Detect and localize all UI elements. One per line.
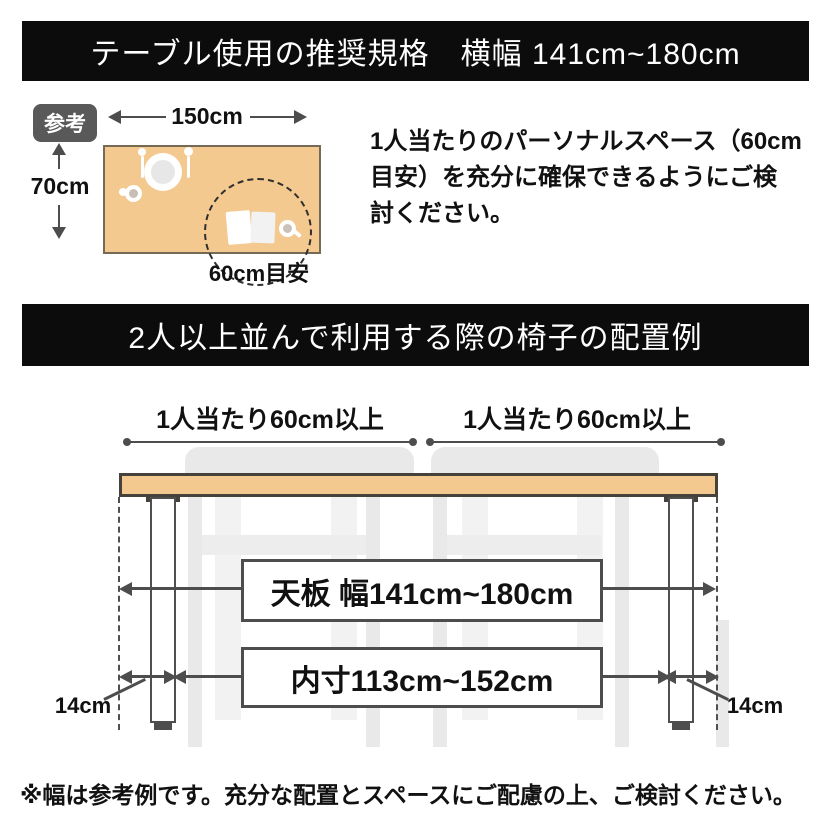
table-leg-left [150, 497, 176, 723]
chair-leg-left-2 [215, 497, 241, 720]
line-end-dot [123, 438, 131, 446]
reference-badge: 参考 [33, 104, 97, 142]
per-person-line-left [127, 441, 413, 443]
note-line-2: 目安）を充分に確保できるようにご検 [370, 160, 822, 196]
table-depth-label: 70cm [30, 173, 90, 200]
teacup-inner-icon [283, 224, 292, 233]
inner-arrow-right-line [603, 675, 660, 678]
leg-inset-arrow-left-rhead-icon [164, 670, 177, 684]
tabletop-width-box: 天板 幅141cm~180cm [241, 559, 603, 622]
depth-arrow-up-head-icon [52, 143, 66, 155]
depth-arrow-down-head-icon [52, 227, 66, 239]
layout-banner-title: 2人以上並んで利用する際の椅子の配置例 [128, 313, 702, 357]
per-person-line-right [430, 441, 721, 443]
chair-leg-right-1 [433, 497, 447, 747]
note-line-1: 1人当たりのパーソナルスペース（60cm [370, 124, 822, 160]
inner-width-label: 内寸113cm~152cm [291, 656, 554, 700]
chair-seat-right [447, 535, 601, 555]
reference-badge-label: 参考 [44, 108, 86, 138]
note-line-3: 討ください。 [370, 196, 822, 232]
table-leg-right [668, 497, 694, 723]
book-left-page-icon [226, 210, 253, 245]
chair-leg-right-4 [615, 497, 629, 747]
leg-inset-label-left: 14cm [46, 693, 120, 719]
personal-space-label: 60cm目安 [192, 256, 326, 288]
inner-width-box: 内寸113cm~152cm [241, 647, 603, 708]
depth-arrow-lower-stem [58, 205, 60, 227]
tabletop-arrow-left-line [131, 587, 241, 590]
book-right-page-icon [250, 212, 275, 244]
cup-inner-icon [129, 189, 138, 198]
depth-arrow-upper-stem [58, 155, 60, 169]
leg-inset-arrow-left-line [129, 675, 167, 678]
table-width-label: 150cm [166, 103, 248, 130]
chair-leg-left-1 [188, 497, 202, 747]
table-leg-foot-right [672, 721, 690, 730]
personal-space-note: 1人当たりのパーソナルスペース（60cm 目安）を充分に確保できるようにご検 討… [370, 124, 822, 232]
infographic-page: テーブル使用の推奨規格 横幅 141cm~180cm 参考 150cm 70cm… [0, 0, 831, 831]
line-end-dot [409, 438, 417, 446]
table-leg-foot-left [154, 721, 172, 730]
tabletop-arrow-right-head-icon [703, 582, 716, 596]
chair-seat-left [202, 535, 366, 555]
footer-note: ※幅は参考例です。充分な配置とスペースにご配慮の上、ご検討ください。 [20, 776, 796, 810]
spoon-icon [184, 147, 193, 156]
tabletop-width-label: 天板 幅141cm~180cm [271, 569, 574, 613]
fork-icon [138, 148, 146, 156]
tabletop-arrow-right-line [603, 587, 705, 590]
width-arrow-left-line [120, 116, 166, 118]
leg-inset-label-right: 14cm [718, 693, 792, 719]
spoon-handle-icon [187, 156, 190, 178]
per-person-label-right: 1人当たり60cm以上 [427, 400, 727, 436]
width-arrow-right-head-icon [294, 110, 307, 124]
spec-banner: テーブル使用の推奨規格 横幅 141cm~180cm [22, 21, 809, 81]
per-person-label-left: 1人当たり60cm以上 [120, 400, 420, 436]
chair-leg-left-4 [366, 497, 380, 747]
line-end-dot [426, 438, 434, 446]
leg-inset-arrow-right-rhead-icon [706, 670, 719, 684]
spec-banner-title: テーブル使用の推奨規格 横幅 141cm~180cm [90, 29, 740, 73]
plate-inner-icon [151, 160, 175, 184]
inner-arrow-left-line [185, 675, 241, 678]
line-end-dot [717, 438, 725, 446]
tabletop-side-view [119, 473, 718, 497]
leg-inset-arrow-right-line [673, 675, 709, 678]
width-arrow-right-line [250, 116, 296, 118]
layout-banner: 2人以上並んで利用する際の椅子の配置例 [22, 304, 809, 366]
